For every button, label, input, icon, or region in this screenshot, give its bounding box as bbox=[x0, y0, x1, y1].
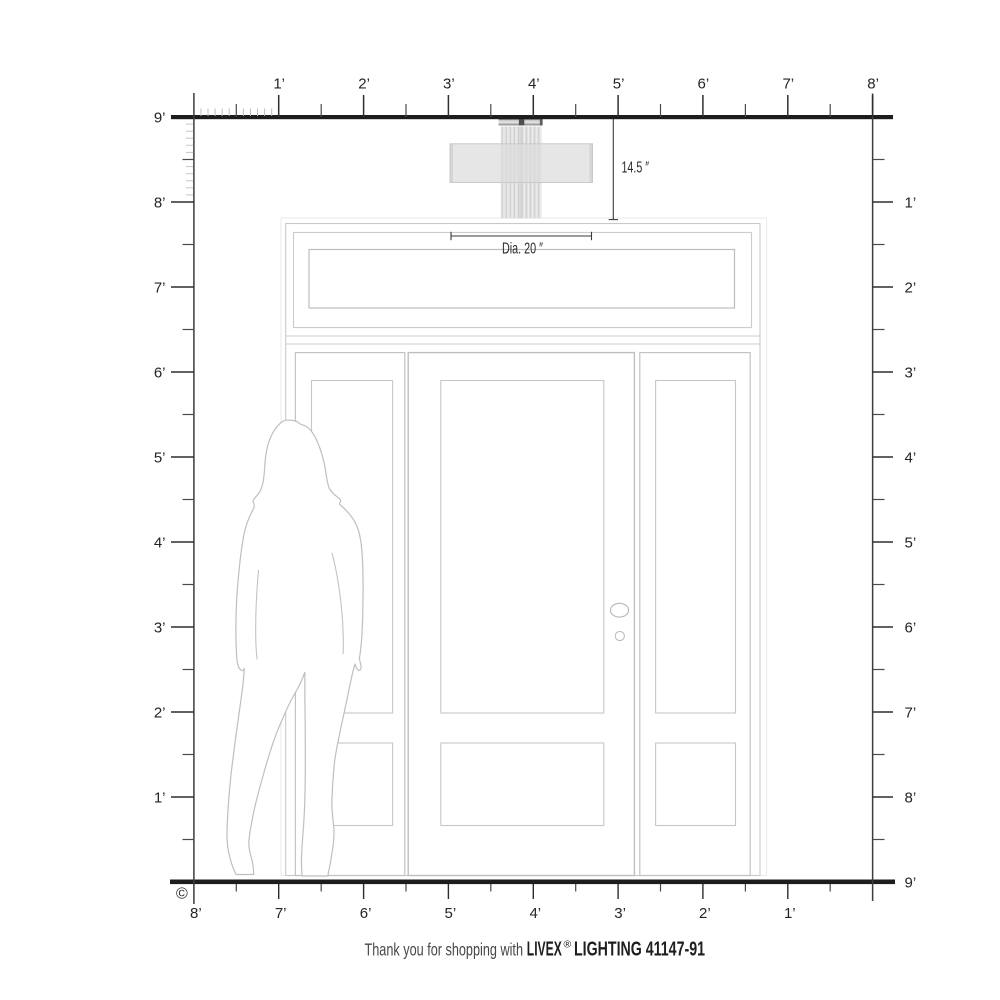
svg-text:6’: 6’ bbox=[360, 905, 372, 922]
svg-text:1’: 1’ bbox=[784, 905, 796, 922]
svg-text:3’: 3’ bbox=[614, 905, 626, 922]
svg-text:5’: 5’ bbox=[905, 535, 917, 552]
svg-text:8’: 8’ bbox=[190, 905, 202, 922]
svg-text:3’: 3’ bbox=[443, 76, 455, 93]
svg-text:LIVEX: LIVEX bbox=[527, 939, 562, 961]
svg-text:7’: 7’ bbox=[905, 705, 917, 722]
svg-text:2’: 2’ bbox=[358, 76, 370, 93]
svg-text:7’: 7’ bbox=[154, 280, 166, 297]
svg-text:8’: 8’ bbox=[154, 195, 166, 212]
svg-text:6’: 6’ bbox=[698, 76, 710, 93]
svg-text:4’: 4’ bbox=[529, 905, 541, 922]
svg-text:7’: 7’ bbox=[275, 905, 287, 922]
svg-text:7’: 7’ bbox=[782, 76, 794, 93]
svg-text:1’: 1’ bbox=[154, 790, 166, 807]
svg-text:8’: 8’ bbox=[867, 76, 879, 93]
svg-text:6’: 6’ bbox=[154, 365, 166, 382]
svg-text:1’: 1’ bbox=[905, 195, 917, 212]
svg-text:3’: 3’ bbox=[154, 620, 166, 637]
svg-text:2’: 2’ bbox=[905, 280, 917, 297]
svg-text:3’: 3’ bbox=[905, 365, 917, 382]
svg-text:5’: 5’ bbox=[154, 450, 166, 467]
svg-text:2’: 2’ bbox=[154, 705, 166, 722]
svg-text:1’: 1’ bbox=[273, 76, 285, 93]
svg-text:8’: 8’ bbox=[905, 790, 917, 807]
svg-text:4’: 4’ bbox=[905, 450, 917, 467]
svg-text:6’: 6’ bbox=[905, 620, 917, 637]
svg-text:©: © bbox=[176, 886, 188, 903]
svg-text:Dia. 20 ″: Dia. 20 ″ bbox=[502, 241, 543, 258]
svg-text:9’: 9’ bbox=[154, 110, 166, 127]
svg-text:14.5 ″: 14.5 ″ bbox=[622, 160, 650, 177]
svg-text:LIGHTING 41147-91: LIGHTING 41147-91 bbox=[574, 939, 705, 961]
svg-text:9’: 9’ bbox=[905, 875, 917, 892]
svg-text:4’: 4’ bbox=[528, 76, 540, 93]
svg-text:2’: 2’ bbox=[699, 905, 711, 922]
svg-text:5’: 5’ bbox=[445, 905, 457, 922]
svg-text:5’: 5’ bbox=[613, 76, 625, 93]
svg-text:®: ® bbox=[564, 939, 572, 951]
svg-text:4’: 4’ bbox=[154, 535, 166, 552]
svg-text:Thank you for shopping with: Thank you for shopping with bbox=[365, 940, 524, 960]
